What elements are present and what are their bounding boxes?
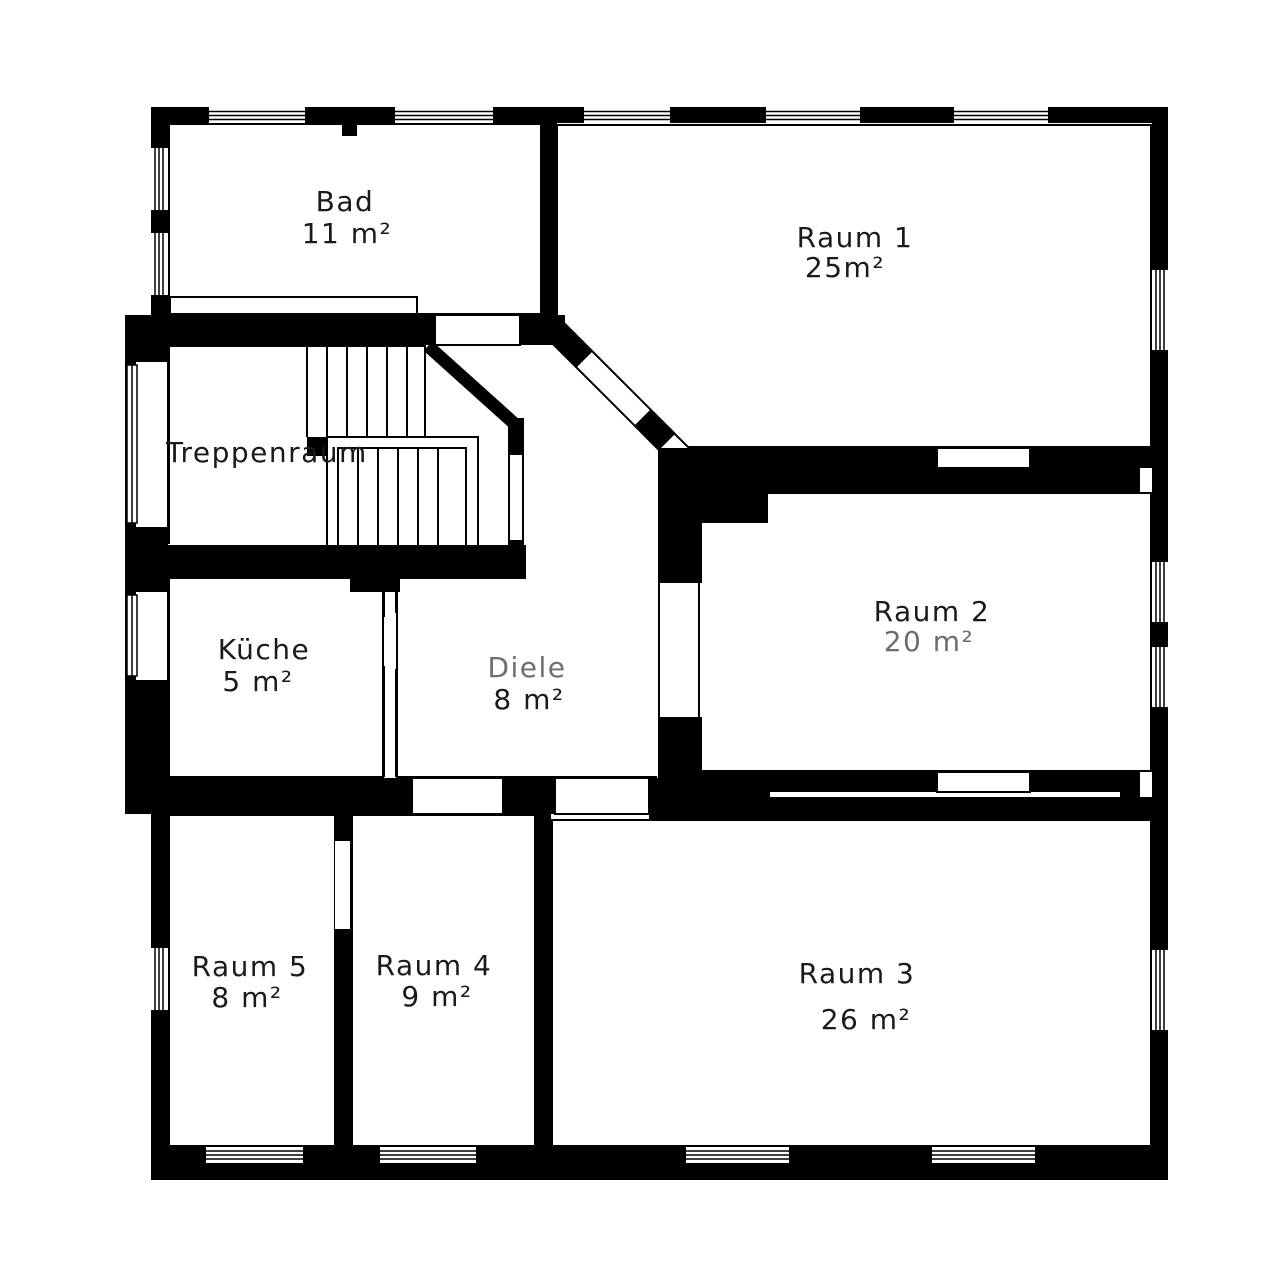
room-area-kueche: 5 m²	[222, 665, 293, 698]
door-diele-raum4	[412, 778, 503, 814]
room-area-raum3: 26 m²	[821, 1003, 912, 1036]
room-area-bad: 11 m²	[302, 217, 393, 250]
window-bottom-3	[686, 1147, 789, 1163]
door-diele-raum2	[656, 583, 702, 717]
window-top-5	[954, 107, 1048, 123]
window-right-raum2-2	[1152, 647, 1168, 707]
room-label-kueche: Küche	[218, 633, 311, 666]
door-raum2-south	[937, 772, 1030, 792]
window-left-raum5	[151, 948, 168, 1010]
room-label-raum2: Raum 2	[874, 595, 991, 628]
door-raum5-raum4	[335, 841, 350, 929]
wall-raum2-top-stub	[1120, 468, 1140, 492]
door-bad	[435, 315, 520, 345]
door-treppenraum-diele	[504, 455, 528, 540]
room-label-raum1: Raum 1	[797, 221, 914, 254]
window-top-2	[395, 107, 493, 123]
window-top-1	[209, 107, 305, 123]
room-area-raum1: 25m²	[805, 251, 885, 284]
window-right-raum3	[1152, 950, 1168, 1030]
wall-stub-kueche-diele	[350, 577, 400, 592]
room-area-raum2: 20 m²	[884, 625, 975, 658]
room-label-raum4: Raum 4	[376, 949, 493, 982]
window-bay-treppenraum	[127, 365, 137, 523]
window-right-raum1	[1152, 270, 1168, 350]
bay-kueche	[136, 592, 167, 680]
window-top-4	[766, 107, 860, 123]
window-right-raum2-1	[1152, 562, 1168, 622]
wall-bad-raum1	[542, 123, 557, 320]
room-area-raum4: 9 m²	[401, 980, 472, 1013]
window-left-bad-1	[151, 148, 168, 210]
room-label-diele: Diele	[487, 651, 566, 684]
floor-plan-page: Bad 11 m² Raum 1 25m² Treppenraum Küche …	[0, 0, 1280, 1287]
window-left-bad-2	[151, 233, 168, 295]
wall-raum2-top	[700, 468, 1120, 492]
room-label-raum3: Raum 3	[799, 957, 916, 990]
window-bay-kueche	[127, 595, 137, 676]
room-area-raum5: 8 m²	[211, 981, 282, 1014]
window-bottom-1	[206, 1147, 303, 1163]
wall-raum2-bottom-stub	[1120, 772, 1140, 797]
wall-raum1-south	[658, 448, 1168, 468]
window-bottom-4	[932, 1147, 1035, 1163]
plan-background	[0, 0, 1280, 1287]
room-area-diele: 8 m²	[493, 683, 564, 716]
wall-raum3-top	[770, 797, 1168, 819]
room-label-bad: Bad	[316, 185, 375, 218]
room-label-treppenraum: Treppenraum	[165, 436, 368, 469]
window-bottom-2	[380, 1147, 476, 1163]
door-diele-raum3	[555, 778, 649, 814]
window-top-3	[584, 107, 670, 123]
room-label-raum5: Raum 5	[192, 950, 309, 983]
wall-raum3-top-thick	[649, 778, 770, 819]
wall-raum4-raum3	[536, 814, 551, 1147]
door-raum1-south	[937, 448, 1030, 468]
floor-plan-canvas: Bad 11 m² Raum 1 25m² Treppenraum Küche …	[0, 0, 1280, 1287]
bay-treppenraum	[136, 362, 167, 527]
